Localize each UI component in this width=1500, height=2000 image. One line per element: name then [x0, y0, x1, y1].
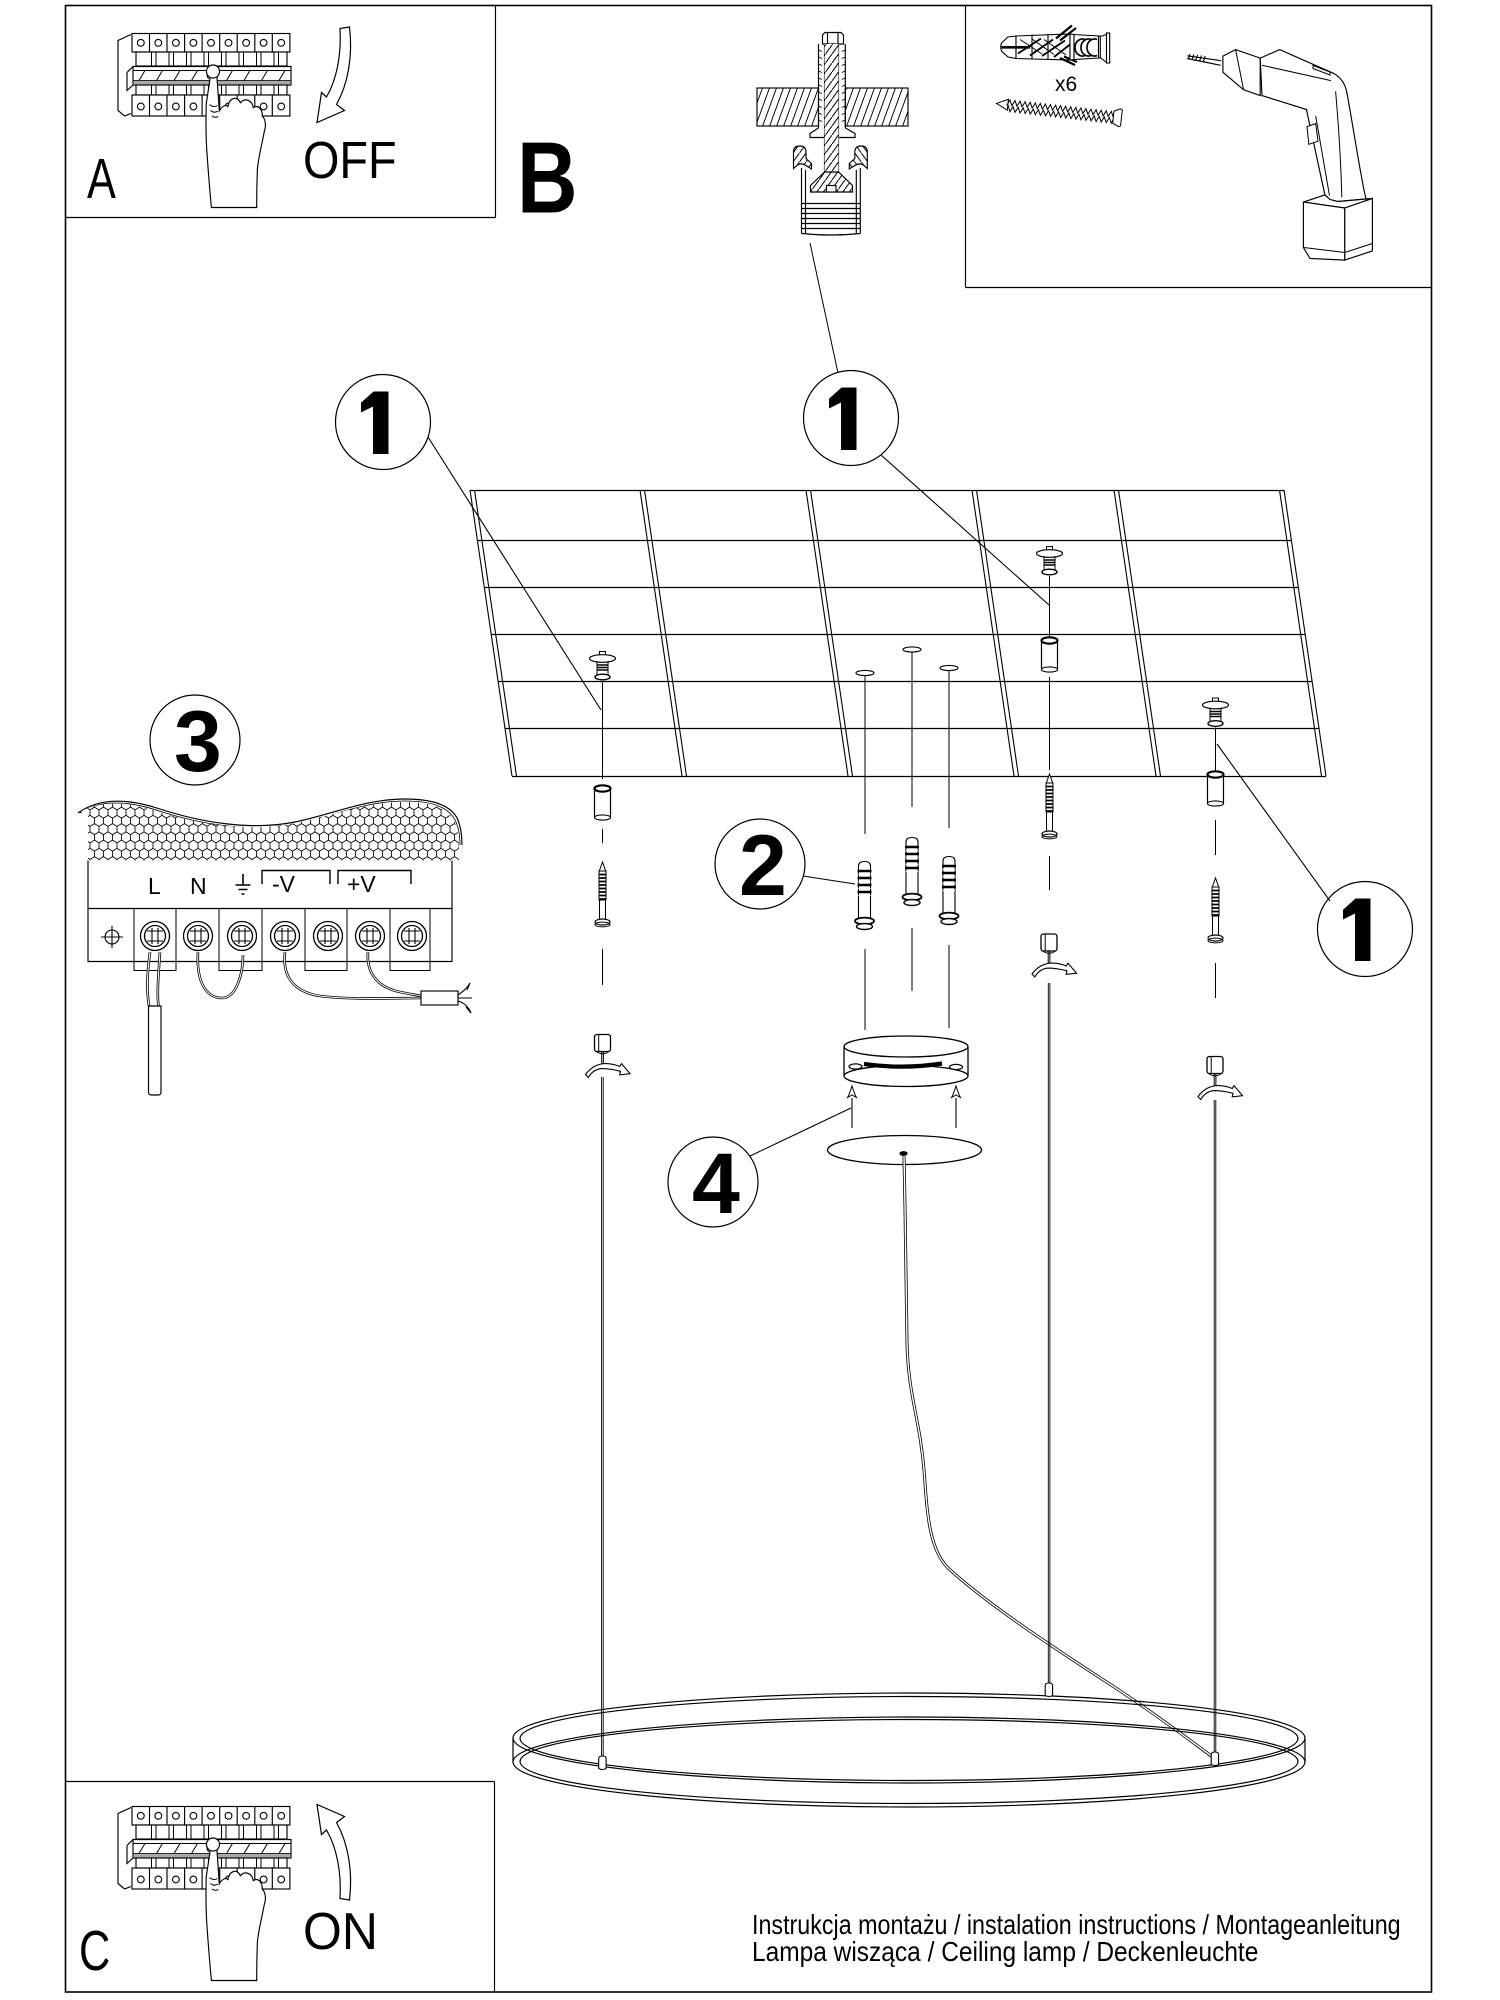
svg-text:B: B — [517, 121, 578, 234]
svg-text:4: 4 — [692, 1136, 740, 1232]
svg-text:Lampa wisząca / Ceiling lamp /: Lampa wisząca / Ceiling lamp / Deckenleu… — [752, 1935, 1258, 1967]
svg-text:C: C — [79, 1918, 110, 1982]
svg-text:ON: ON — [303, 1902, 378, 1960]
svg-text:L: L — [148, 873, 161, 899]
svg-text:x6: x6 — [1055, 73, 1077, 96]
svg-text:+V: +V — [347, 871, 376, 897]
svg-text:-V: -V — [272, 871, 296, 897]
svg-text:OFF: OFF — [303, 132, 397, 190]
svg-text:3: 3 — [174, 694, 222, 790]
svg-text:A: A — [87, 146, 116, 210]
svg-text:2: 2 — [739, 818, 787, 914]
svg-text:N: N — [190, 873, 207, 899]
